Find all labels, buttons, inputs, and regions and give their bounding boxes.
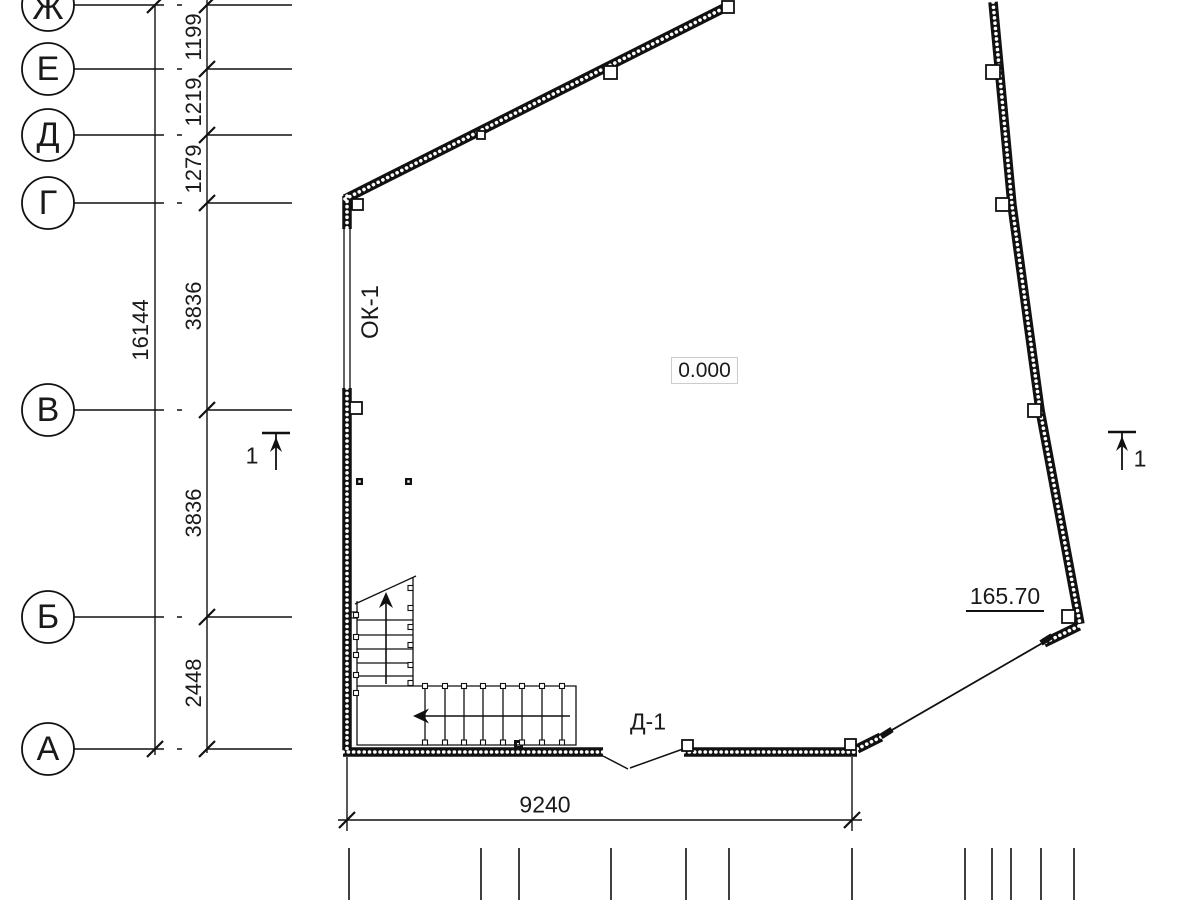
dim-v-b: 3836 xyxy=(183,489,205,538)
door-swing xyxy=(603,749,683,769)
window-diagonal xyxy=(881,636,1052,737)
level-mark-value: 0.000 xyxy=(678,359,731,383)
column-markers xyxy=(356,478,523,749)
door-mark-label: Д-1 xyxy=(630,711,666,734)
window-mark-label: ОК-1 xyxy=(359,285,383,339)
grid-letter-v: В xyxy=(37,393,60,427)
grid-letter-a: А xyxy=(37,732,60,766)
plan-linework xyxy=(0,0,1200,900)
stairs xyxy=(351,576,576,745)
section-number-left: 1 xyxy=(246,445,259,468)
section-mark-right xyxy=(1108,432,1136,470)
dim-g-v: 3836 xyxy=(183,282,205,331)
dim-e-d: 1219 xyxy=(183,78,205,127)
dim-overall: 16144 xyxy=(130,299,152,360)
level-mark-box: 0.000 xyxy=(671,357,738,384)
grid-letter-zh: Ж xyxy=(32,0,63,25)
elevation-label: 165.70 xyxy=(966,585,1044,612)
grid-letter-b: Б xyxy=(37,600,59,634)
grid-letter-d: Д xyxy=(36,118,59,152)
grid-letter-e: Е xyxy=(37,52,60,86)
floor-plan-drawing: Ж Е Д Г В Б А 1199 1219 1279 3836 3836 2… xyxy=(0,0,1200,900)
stair-posts xyxy=(354,586,565,746)
dim-d-g: 1279 xyxy=(183,145,205,194)
dim-bottom-label: 9240 xyxy=(519,794,570,817)
dim-b-a: 2448 xyxy=(183,659,205,708)
section-mark-left xyxy=(262,433,290,470)
bottom-cutoff-lines xyxy=(349,848,1074,900)
section-number-right: 1 xyxy=(1134,448,1147,471)
window-left xyxy=(344,229,350,388)
dimension-lines xyxy=(155,0,862,831)
grid-letter-g: Г xyxy=(39,186,57,220)
dim-zh-e: 1199 xyxy=(183,13,205,60)
